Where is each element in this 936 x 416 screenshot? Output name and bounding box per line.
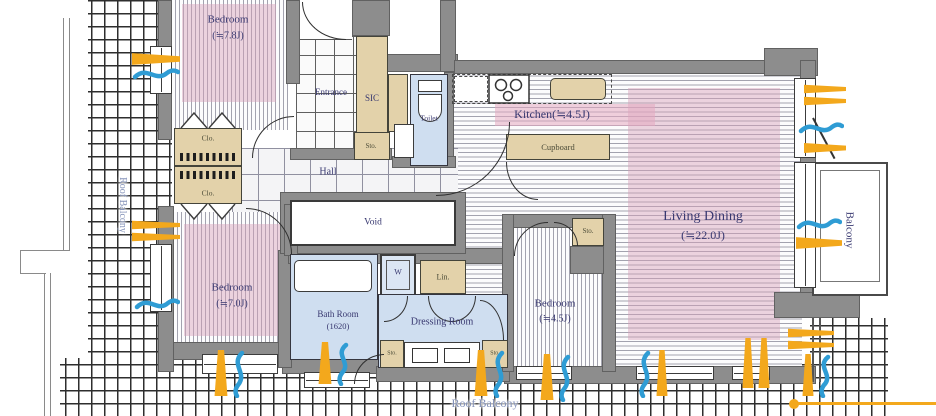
dimension-dot-icon (789, 399, 799, 409)
sic-label: SIC (365, 93, 379, 103)
wall-segment (570, 246, 604, 274)
site-boundary-line (50, 273, 51, 416)
stove-icon (488, 74, 530, 104)
wind-arrow-icon (638, 350, 654, 398)
balcony-label: Balcony (843, 212, 856, 249)
wind-arrow-icon (132, 66, 180, 84)
wind-arrow-icon (492, 350, 508, 398)
kitchen-label: Kitchen(≒4.5J) (514, 108, 590, 122)
toilet-sink (394, 124, 414, 158)
closet-label: Clo. (202, 135, 215, 144)
entrance-label: Entrance (315, 87, 347, 97)
wind-arrow-icon (336, 342, 352, 386)
bedroom78-size: (≒7.8J) (212, 30, 243, 42)
toilet-tank-icon (418, 80, 442, 92)
wall-segment (376, 366, 510, 382)
closet-door-icon (176, 110, 240, 128)
site-boundary-line (44, 273, 45, 416)
balcony-railing (812, 318, 814, 382)
bedroom70-size: (≒7.0J) (216, 298, 247, 310)
wall-segment (286, 0, 300, 84)
vanity-sink-icon (412, 348, 438, 363)
bedroom45-label: Bedroom (535, 298, 576, 311)
vanity-sink-icon (444, 348, 470, 363)
wind-arrow-icon (558, 354, 574, 402)
wind-arrow-icon (798, 120, 844, 138)
void-label: Void (364, 218, 382, 229)
closet-door-icon (176, 204, 240, 222)
linen-label: Lin. (436, 272, 449, 281)
wall-segment (454, 60, 816, 74)
site-boundary-line (69, 18, 70, 251)
wind-arrow-icon (232, 350, 248, 398)
site-boundary-line (20, 250, 70, 251)
dimension-line (794, 402, 936, 405)
roof-balcony-left-label: Roof Balcony (116, 177, 128, 233)
bath-label: Bath Room (317, 309, 358, 319)
sunlight-arrow-icon (804, 96, 846, 106)
bedroom45-size: (≒4.5J) (539, 313, 570, 325)
wind-arrow-icon (796, 216, 842, 234)
roof-balcony-bottom-label: Roof Balcony (452, 397, 519, 411)
storage-label: Sto. (365, 142, 376, 150)
closet-hanger-icon (180, 171, 236, 179)
bedroom70-label: Bedroom (212, 282, 253, 295)
bath-size: (1620) (327, 322, 350, 332)
cupboard-label: Cupboard (541, 143, 575, 153)
storage-label: Sto. (387, 351, 397, 358)
site-boundary-line (20, 273, 46, 274)
living-dining-label: Living Dining (663, 209, 743, 225)
floor-plan: Bedroom (≒7.8J) Entrance SIC Sto. Toilet… (0, 0, 936, 416)
washer-label: W (394, 267, 402, 276)
wind-arrow-icon (134, 296, 180, 314)
wind-arrow-icon (818, 354, 834, 398)
site-boundary-line (63, 18, 64, 251)
kitchen-counter-top (550, 78, 606, 100)
wall-segment (352, 0, 390, 36)
hall-label: Hall (319, 166, 336, 178)
storage-label: Sto. (582, 227, 593, 235)
bathtub-icon (294, 260, 372, 292)
kitchen-sink (454, 76, 488, 102)
sic-cabinet (356, 36, 388, 138)
bedroom78-label: Bedroom (208, 14, 249, 27)
sunlight-arrow-icon (804, 84, 846, 94)
closet-label: Clo. (202, 190, 215, 199)
site-boundary-line (20, 250, 21, 274)
dressing-label: Dressing Room (411, 316, 474, 328)
toilet-label: Toilet (420, 115, 437, 124)
wall-segment (602, 214, 616, 372)
living-dining-size: (≒22.0J) (681, 229, 725, 243)
closet-hanger-icon (180, 153, 236, 161)
